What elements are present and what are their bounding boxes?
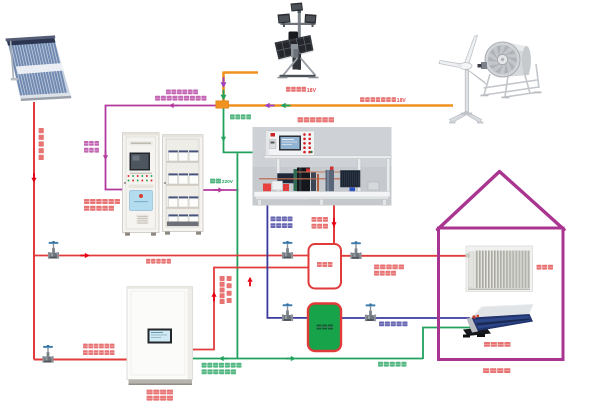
svg-text:18V: 18V: [307, 88, 317, 94]
svg-text:220V: 220V: [222, 179, 234, 185]
svg-text:18V: 18V: [397, 98, 407, 104]
